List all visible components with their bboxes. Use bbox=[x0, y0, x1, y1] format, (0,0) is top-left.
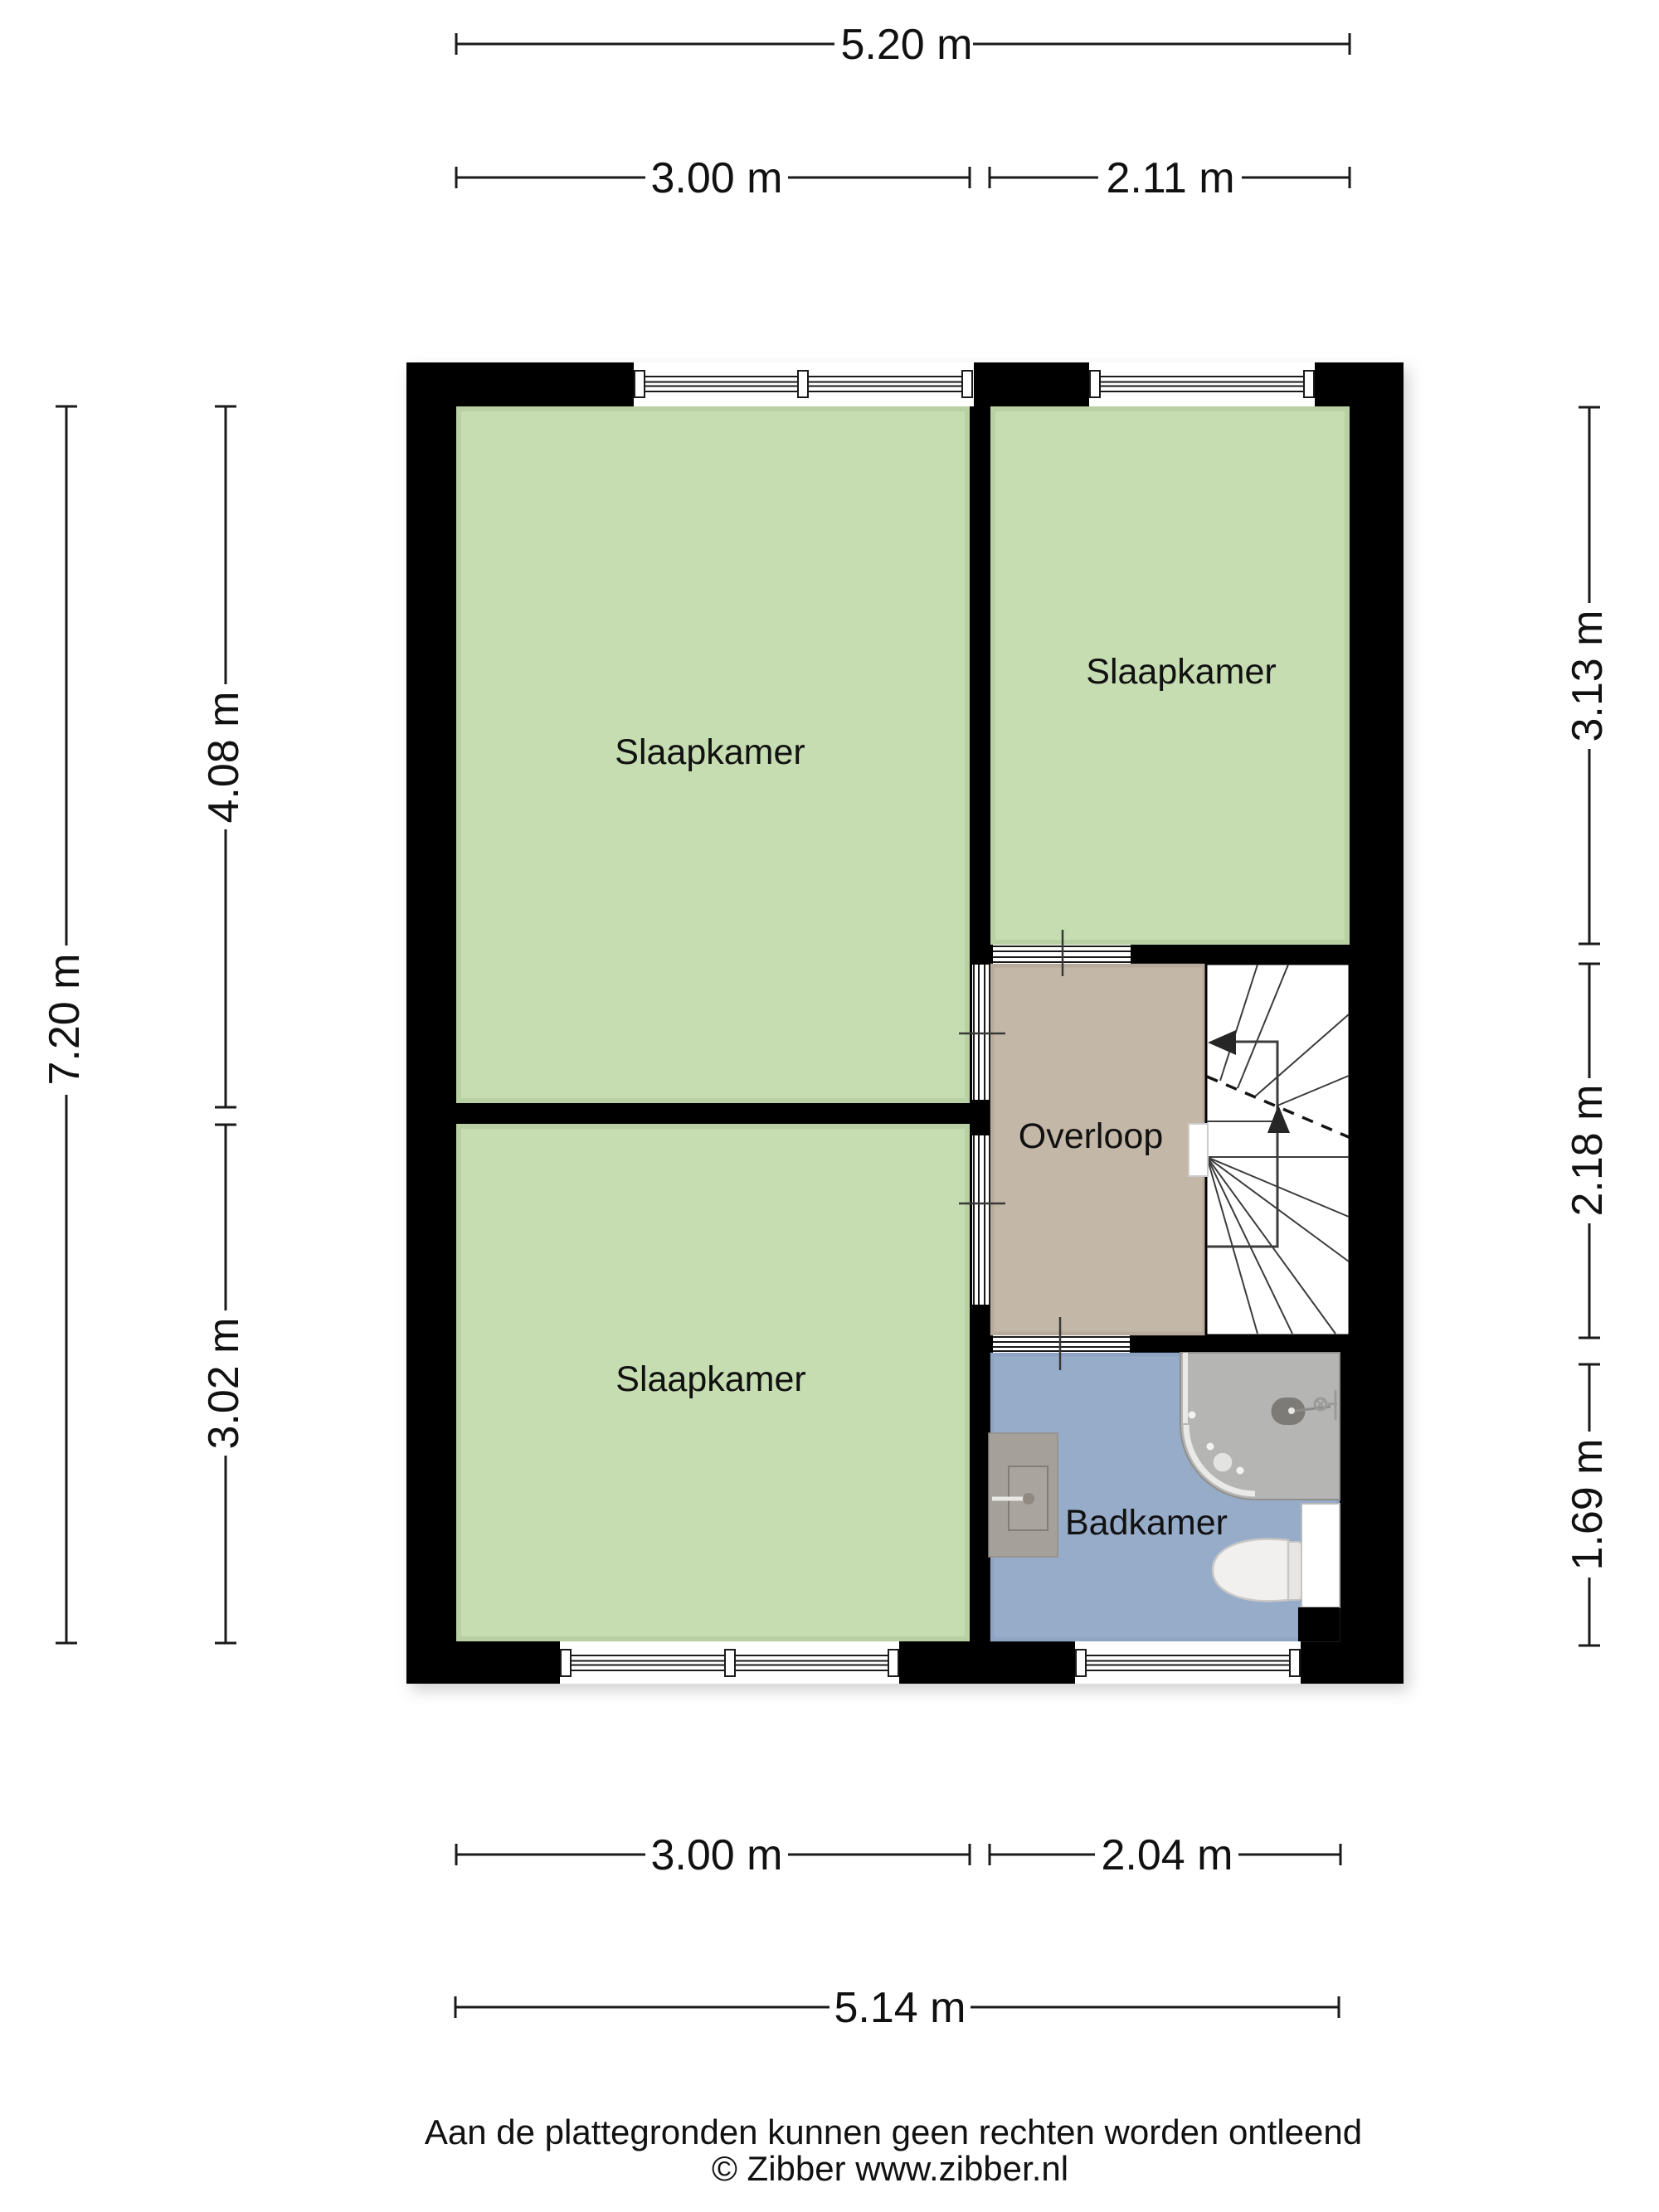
svg-text:Aan de plattegronden kunnen ge: Aan de plattegronden kunnen geen rechten… bbox=[425, 2112, 1362, 2151]
svg-text:3.00 m: 3.00 m bbox=[651, 1831, 783, 1879]
svg-text:5.20 m: 5.20 m bbox=[841, 21, 973, 69]
svg-text:3.02 m: 3.02 m bbox=[200, 1318, 248, 1450]
svg-text:2.04 m: 2.04 m bbox=[1102, 1831, 1233, 1879]
svg-text:3.00 m: 3.00 m bbox=[651, 154, 783, 202]
svg-text:3.13 m: 3.13 m bbox=[1564, 610, 1612, 742]
svg-text:Badkamer: Badkamer bbox=[1065, 1503, 1228, 1543]
svg-text:4.08 m: 4.08 m bbox=[200, 692, 248, 824]
svg-text:Overloop: Overloop bbox=[1019, 1116, 1163, 1156]
svg-text:2.11 m: 2.11 m bbox=[1106, 154, 1234, 202]
svg-text:Slaapkamer: Slaapkamer bbox=[615, 1359, 805, 1399]
svg-text:7.20 m: 7.20 m bbox=[41, 954, 89, 1086]
svg-text:1.69 m: 1.69 m bbox=[1564, 1439, 1612, 1571]
svg-text:5.14 m: 5.14 m bbox=[834, 1984, 966, 2032]
svg-text:© Zibber www.zibber.nl: © Zibber www.zibber.nl bbox=[712, 2149, 1068, 2188]
svg-text:Slaapkamer: Slaapkamer bbox=[615, 732, 805, 772]
svg-text:2.18 m: 2.18 m bbox=[1564, 1085, 1612, 1217]
svg-text:Slaapkamer: Slaapkamer bbox=[1086, 652, 1276, 692]
